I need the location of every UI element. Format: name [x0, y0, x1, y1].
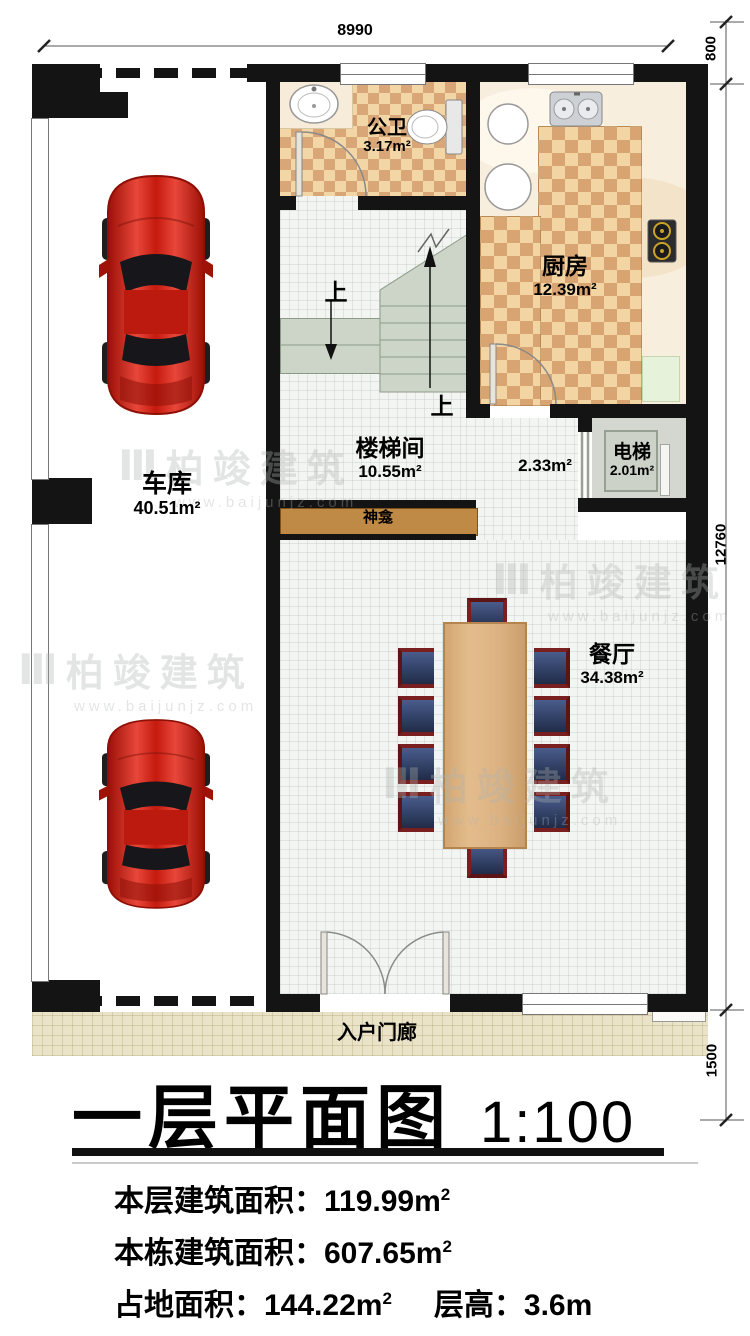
dining-label: 餐厅 34.38m²	[552, 642, 672, 687]
entry-door-leaf	[443, 932, 449, 994]
stair-up-label: 上	[320, 280, 352, 306]
floor-plan-page: Ⅲ柏竣建筑 www.baijunjz.com Ⅲ柏竣建筑 www.baijunj…	[0, 0, 750, 1336]
watermark-logo: Ⅲ	[492, 556, 532, 603]
entry-door-arc	[385, 932, 443, 994]
stat-building-area: 本栋建筑面积：607.65m2	[114, 1228, 452, 1272]
kitchen-door-leaf	[490, 344, 496, 404]
watermark: Ⅲ柏竣建筑 www.baijunjz.com	[382, 756, 621, 829]
car-top-view	[99, 176, 213, 414]
dimension-right-bottom: 1500	[704, 1021, 721, 1101]
wall-corner	[32, 980, 100, 1012]
elevator-label: 电梯 2.01m²	[586, 442, 678, 479]
wall	[646, 994, 708, 1012]
wall	[550, 404, 686, 418]
wall	[466, 404, 490, 418]
garage-label: 车库 40.51m²	[100, 470, 234, 518]
window	[31, 118, 49, 480]
car-top-view	[99, 720, 213, 908]
stairwell-label: 楼梯间 10.55m²	[322, 436, 458, 481]
wall	[450, 994, 522, 1012]
stat-footprint-height: 占地面积：144.22m2层高：3.6m	[114, 1280, 592, 1324]
shrine-label: 神龛	[280, 510, 476, 527]
wall	[280, 534, 476, 540]
wall-pier	[32, 478, 92, 524]
window	[340, 63, 426, 85]
wall	[280, 196, 296, 210]
dimension-right-middle: 12760	[713, 500, 730, 590]
sink-drain	[312, 104, 316, 108]
window	[31, 524, 49, 982]
watermark: Ⅲ柏竣建筑 www.baijunjz.com	[18, 642, 257, 715]
wall	[266, 64, 280, 1012]
wall	[578, 498, 686, 512]
porch-label: 入户门廊	[282, 1022, 472, 1044]
stat-floor-area: 本层建筑面积：119.99m2	[114, 1176, 450, 1220]
entry-door-arc	[327, 932, 385, 994]
window	[528, 63, 634, 85]
title-rule	[72, 1148, 664, 1156]
hallway-area-label: 2.33m²	[500, 456, 590, 475]
watermark-logo: Ⅲ	[18, 646, 58, 693]
title-rule-thin	[72, 1162, 698, 1164]
bathroom-door-leaf	[296, 132, 302, 196]
wall	[358, 196, 466, 210]
watermark: Ⅲ柏竣建筑 www.baijunjz.com	[492, 552, 731, 625]
stair-up-label: 上	[426, 394, 458, 420]
window	[522, 993, 648, 1015]
kitchen-door-arc	[496, 344, 556, 404]
wall	[686, 64, 708, 1012]
watermark-logo: Ⅲ	[382, 760, 422, 807]
wall	[466, 64, 480, 418]
kitchen-counter-round	[485, 164, 531, 210]
entry-door-leaf	[321, 932, 327, 994]
kitchen-counter-round	[488, 104, 528, 144]
stair-flight	[380, 234, 468, 392]
sink-faucet	[312, 87, 317, 92]
wall-corner	[32, 64, 100, 118]
kitchen-label: 厨房 12.39m²	[500, 254, 630, 299]
wall	[578, 418, 592, 432]
dimension-right-top: 800	[703, 19, 720, 79]
wall-corner	[100, 92, 128, 118]
stair-down-arrowhead	[325, 344, 337, 360]
scale-label: 1:100	[480, 1089, 635, 1156]
bathroom-label: 公卫 3.17m²	[325, 117, 449, 156]
dimension-top: 8990	[290, 22, 420, 40]
